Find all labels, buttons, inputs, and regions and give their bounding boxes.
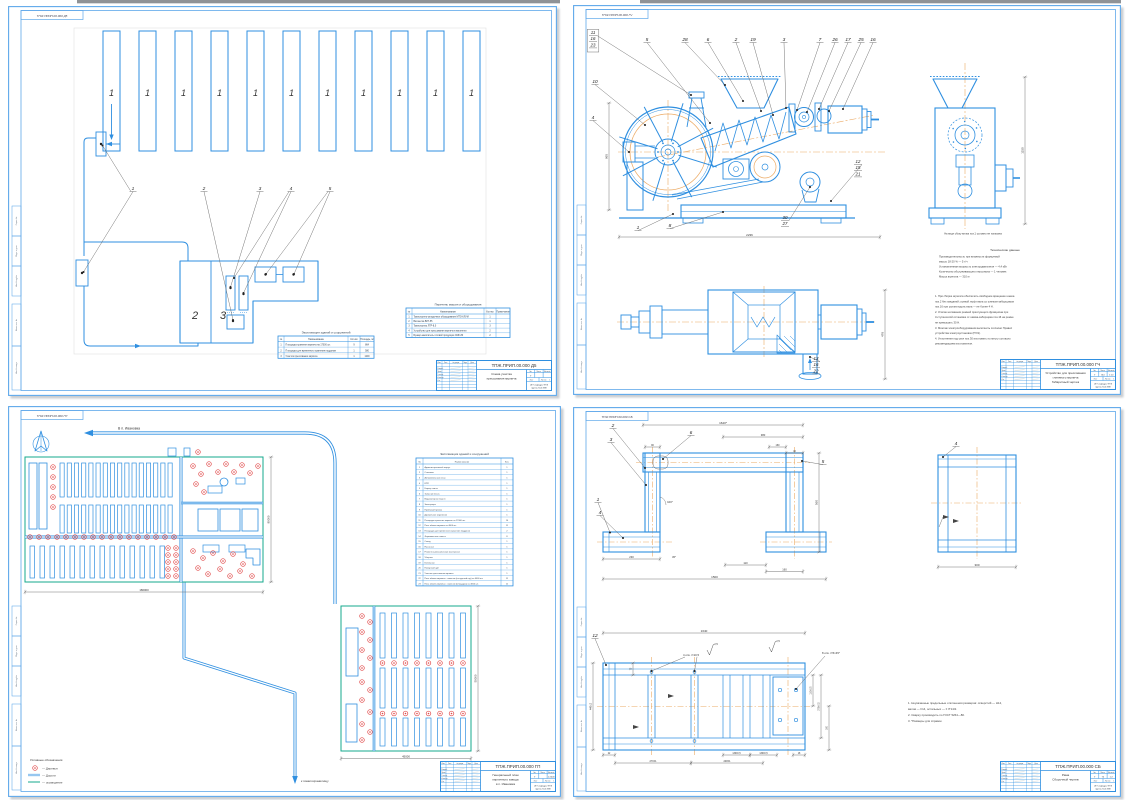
table-cell: 1 (506, 562, 508, 564)
margin-stamp: Справ. № (580, 618, 583, 627)
tech-data-line: Количество обслуживающего персонала — 1 … (939, 270, 1007, 274)
position-callout: 22 (813, 368, 819, 373)
margin-stamp: Подп. и дата (581, 243, 583, 255)
text-label: Лист (444, 362, 448, 364)
table-cell: Площадка хранения кирпича на 17000 шт. (286, 345, 332, 347)
table-header: Кол. (505, 462, 510, 464)
margin-stamp: Инв. № подл. (15, 362, 18, 374)
margin-stamp: Взам. инв. № (15, 319, 18, 331)
position-callout: 12 (592, 633, 598, 639)
note-line: устройства электроустановок (ПУЭ). (935, 331, 981, 335)
text-label: Утв. (441, 781, 445, 783)
text-label: 310 (1101, 374, 1105, 376)
dimension: 110±0,5 (810, 686, 812, 695)
table-cell: 864 (365, 345, 370, 347)
text-label: Т.контр. (437, 374, 444, 376)
text-label: Дата (1034, 763, 1038, 765)
text-label: Дата (474, 763, 478, 765)
chamber-label: 1 (325, 88, 330, 98)
table-cell: 5 (419, 488, 421, 490)
text-label: Т.контр. (1001, 373, 1008, 375)
table-cell: Запасник песка (425, 493, 441, 495)
sheet-machine[interactable]: ТПЖ.ПРИП.00.000 ГЧСправ. №Подп. и датаИн… (573, 5, 1121, 395)
table-cell: Карьер глины (425, 488, 439, 490)
table-cell: 9 (353, 345, 355, 347)
dimension: 560 (814, 500, 818, 505)
organization: группа П-41 МЖ (1095, 789, 1111, 791)
side-view (929, 63, 1020, 229)
table-cell: Водонапорная башня (425, 499, 446, 501)
table-cell: 1 (506, 557, 508, 559)
table-cell: 2 (419, 472, 421, 474)
note-line: 1. Неуказанные предельные отклонения раз… (908, 701, 1002, 705)
drawing-title: прессования кирпича (487, 377, 517, 381)
table-header: Площадь, м² (360, 338, 374, 341)
title-block: Изм.Лист№ докум.Подп.ДатаРазраб.Пров.Т.к… (1001, 360, 1116, 390)
organization: группа П-41 МЖ (535, 789, 551, 791)
dimension: 1640 (701, 629, 708, 633)
sheet-machine-canvas: ТПЖ.ПРИП.00.000 ГЧСправ. №Подп. и датаИн… (573, 5, 1121, 395)
position-callout: 2 (734, 37, 738, 43)
text-label: Лист (1094, 781, 1098, 783)
position-callout: 26 (831, 37, 838, 43)
plan-view (617, 286, 877, 380)
drying-chambers: 11111111111 (103, 31, 480, 151)
table-cell: Ремонтно-механическая мастерская (425, 552, 460, 554)
text-label: Масса (537, 371, 542, 373)
title-block: Изм.Лист№ докум.Подп.ДатаРазраб.Пров.Т.к… (1001, 762, 1116, 792)
drawing-title: кирпичного завода (492, 778, 518, 782)
road-destination-label: В п. Ивановка (118, 427, 140, 431)
drawing-title: в п. Ивановка (496, 782, 515, 786)
position-callout: 3 (259, 186, 262, 192)
text-label: Утв. (1001, 379, 1005, 381)
table-cell: Транспортно-укладочное оборудование МТО-… (414, 316, 469, 318)
text-label: 1:2 (1110, 776, 1114, 778)
text-label: Листов (1105, 781, 1111, 783)
position-callout: 1 (132, 186, 135, 192)
position-callout: 5 (822, 459, 825, 465)
chamber-label: 1 (469, 88, 474, 98)
organization: ЧГУ кафедра ТПЖ (1094, 382, 1112, 385)
table-cell: Участок прессования кирпича (425, 573, 455, 575)
table-header: Наименование (455, 462, 470, 464)
text-label: Дата (470, 362, 474, 364)
title-block: Изм.Лист№ докум.Подп.ДатаРазраб.Пров.Т.к… (441, 762, 556, 792)
table-cell: 5 (408, 335, 410, 337)
text-label: Пров. (437, 371, 442, 373)
table-cell: 1200 (364, 356, 370, 358)
table-cell: Участок прессования кирпича (286, 356, 319, 358)
tech-data-line: массы 18-20 % — 5 т/ч (939, 260, 968, 264)
dimension: 160 (782, 567, 787, 571)
table-cell: 16 (418, 546, 421, 548)
table-cell: Площадка хранения кирпича на 17000 шт. (425, 520, 466, 522)
table-cell: Вагонетка ВЛГ-55 (414, 321, 434, 323)
organization: ЧГУ кафедра ТПЖ (1094, 784, 1112, 787)
position-callout: 19 (750, 37, 756, 43)
sheet-genplan[interactable]: ТПЖ.ПРИП.00.000 ГПСправ. №Подп. и датаИн… (8, 406, 561, 797)
position-callout: 1 (597, 497, 600, 503)
table-cell: 12 (418, 525, 421, 527)
margin-stamp: Инв. № дубл. (580, 676, 583, 688)
table-cell: 1 (506, 541, 508, 543)
drawing-board: ТПЖ.ПРИП.00.000 Д5Справ. №Подп. и датаИн… (0, 0, 1126, 800)
road-destination-label: к пометохранилищу (301, 779, 329, 783)
dimension: 478 (880, 332, 884, 337)
table-cell: Административный корпус (425, 466, 451, 469)
main-site (25, 448, 263, 582)
text-label: Т.контр. (441, 775, 448, 777)
table-cell: 3 (419, 478, 421, 480)
chamber-label: 1 (181, 88, 186, 98)
note-line: поз.2 без заеданий; осевой люфт вала со … (935, 299, 1014, 303)
table-cell: Склад (425, 541, 432, 543)
position-callout: 16 (814, 362, 819, 367)
table-cell: 1 (419, 467, 421, 469)
organization: ЧГУ кафедра ТПЖ (534, 784, 552, 787)
chamber-label: 1 (289, 88, 294, 98)
text-label: Масштаб (548, 772, 555, 774)
sheet-frame[interactable]: ТПЖ.ПРИП.00.000 СБСправ. №Подп. и датаИн… (573, 407, 1121, 797)
position-callout: 4 (599, 510, 602, 516)
table-cell: 1 (506, 467, 508, 469)
hole-note: 8 отв. ∅5×45° (822, 651, 840, 655)
sheet-scheme-canvas: ТПЖ.ПРИП.00.000 Д5Справ. №Подп. и датаИн… (8, 6, 557, 396)
table-header: Кол-во (350, 339, 358, 341)
tech-data-line: Установленная мощность электродвигателя … (939, 265, 1008, 269)
table-cell: 2 (408, 321, 410, 323)
dimension: 18 (798, 753, 801, 755)
drawing-title: Рама (1062, 773, 1070, 777)
position-callout: 27 (782, 221, 788, 226)
table-cell: Печь обжига кирпича с навесом (площадка)… (425, 584, 479, 586)
table-cell: Формовочные навесы (425, 535, 447, 538)
text-label: Масштаб (544, 371, 551, 373)
chamber-label: 1 (145, 88, 150, 98)
table-cell: Площадка для временного хранения поддоно… (425, 531, 471, 533)
position-callout: 5 (329, 186, 332, 192)
table-title: Экспликация зданий и сооружений (302, 331, 351, 335)
table-cell: 1 (506, 568, 508, 570)
table-cell: 6 (419, 493, 421, 495)
position-callout: 3 (610, 437, 613, 443)
text-label: Листов (545, 781, 551, 783)
margin-stamp: Справ. № (15, 217, 18, 226)
dimension: 270±0,5 (818, 702, 820, 711)
table-header: № (280, 338, 283, 341)
margin-stamp: Справ. № (15, 617, 18, 626)
dimension: 300 (974, 563, 979, 567)
table-cell: Насосная (425, 546, 434, 548)
document-code: ТПЖ.ПРИП.00.000 ГП (496, 764, 541, 769)
dimension: 75 (630, 667, 632, 670)
position-callout: 2 (611, 423, 615, 429)
position-callout: 2 (202, 186, 206, 192)
table-cell: 3 (489, 326, 491, 328)
roughness: 2,5 (776, 639, 780, 643)
text-label: Лист (1094, 379, 1098, 381)
table-cell: Уборная (425, 557, 433, 559)
table-cell: 1 (506, 546, 508, 548)
text-label: 74 (1102, 776, 1105, 778)
table-cell: 14 (506, 520, 509, 522)
table-cell: 11 (418, 520, 421, 522)
table-cell: 10 (418, 515, 421, 517)
second-site (341, 606, 471, 751)
corner-stamp-code: ТПЖ.ПРИП.00.000 СБ (601, 415, 632, 419)
note-line: 2. Усилие натяжения ремней прессующего ф… (935, 310, 1009, 314)
text-label: Масштаб (1108, 772, 1115, 774)
dimension: 1500 (711, 575, 718, 579)
drawing-title: Сборочный чертеж (1052, 778, 1079, 782)
dimension: 160 (776, 444, 781, 447)
position-callout: 11 (591, 30, 596, 35)
position-callout: 25 (857, 37, 864, 43)
margin-stamp: Инв. № подл. (15, 762, 18, 774)
scheme-drawing: 111111111112312345Экспликация зданий и с… (74, 28, 510, 358)
dimension: 180000 (139, 588, 149, 592)
chamber-label: 1 (397, 88, 402, 98)
side-view (931, 447, 1023, 559)
text-label: Листов (1105, 379, 1111, 381)
note-line: 1. При сборке агрегата обеспечить свобод… (935, 294, 1015, 298)
text-label: Разраб. (437, 368, 444, 370)
table-cell: 4 (408, 330, 410, 332)
table-cell: 1 (506, 552, 508, 554)
zone-label: 2 (191, 310, 198, 322)
position-callout: 17 (845, 37, 851, 43)
chamber-label: 1 (253, 88, 258, 98)
text-label: Масштаб (1108, 370, 1115, 372)
dimension: 1150 (1020, 147, 1024, 154)
table-cell: 1 (506, 504, 508, 506)
roughness: 2,5 (714, 642, 718, 646)
table-cell: Транспортер ЛТР-8,0 (414, 326, 437, 328)
position-callout: 10 (592, 79, 598, 85)
machine-drawing: 22369651150На виде сбоку вилка поз.1 усл… (587, 29, 1027, 380)
dimension: 100° (667, 500, 673, 504)
margin-stamp: Взам. инв. № (580, 318, 583, 330)
dimension: 45° (672, 555, 676, 559)
text-label: Изм. (1001, 361, 1005, 363)
table-cell: Бункер-накопитель готовой продукции СМК-… (414, 334, 464, 337)
margin-stamp: Справ. № (580, 216, 583, 225)
table-cell: 1 (280, 345, 282, 347)
table-cell: 1 (353, 356, 355, 358)
margin-stamp: Инв. № дубл. (580, 274, 583, 286)
position-callout: 6 (707, 37, 710, 43)
title-block: Изм.Лист№ докум.Подп.ДатаРазраб.Пров.Т.к… (437, 361, 552, 391)
table-cell: Электроцех (425, 504, 437, 506)
margin-stamp: Подп. и дата (16, 644, 18, 656)
position-callout: 4 (955, 441, 958, 447)
table-cell: 1 (506, 488, 508, 490)
plan-view (597, 657, 811, 756)
table-header: Примечание (496, 312, 510, 314)
table-cell: 1 (353, 350, 355, 352)
dimension: 380 (761, 433, 766, 437)
legend-item: — ограждение (42, 781, 63, 785)
position-callout: 15 (856, 165, 861, 170)
table-cell: 8 (506, 536, 508, 538)
text-label: Лист (530, 380, 534, 382)
table-cell: 1 (408, 316, 410, 318)
position-callout: 23 (590, 42, 596, 47)
table-cell: Столовая (425, 472, 434, 474)
margin-stamp: Инв. № дубл. (15, 675, 18, 687)
note-line: 3-ступенчатой остановке от шкива-заборщи… (935, 315, 1014, 319)
corner-stamp-code: ТПЖ.ПРИП.00.000 Д5 (37, 14, 68, 18)
text-label: Подп. (463, 362, 468, 364)
table-cell: 1 (506, 483, 508, 485)
text-label: Пров. (1001, 772, 1006, 774)
frame-drawing: 1640*3801604090100°56023045°110160150023… (589, 421, 1023, 765)
tech-text: Технические данныеПроизводительность при… (935, 248, 1020, 346)
sheet-scheme[interactable]: ТПЖ.ПРИП.00.000 Д5Справ. №Подп. и датаИн… (8, 6, 557, 396)
corner-stamp-code: ТПЖ.ПРИП.00.000 ГП (37, 414, 69, 418)
drawing-title: Схема участка (491, 372, 512, 376)
text-label: № докум. (1016, 360, 1024, 363)
drawing-title: Габаритный чертеж (1052, 380, 1079, 384)
table-cell: 1 (506, 573, 508, 575)
organization: группа П-41 МЖ (531, 388, 547, 390)
hole-note: 4 отв. ∅10,5 (683, 653, 699, 657)
note-line: 2. Сварку производить по ГОСТ 5264—80. (908, 713, 965, 717)
text-label: Лист (448, 763, 452, 765)
dimension: 90 (651, 444, 654, 447)
dimension: 440±2 (589, 702, 592, 710)
text-label: Н.контр. (441, 778, 448, 780)
text-label: 1 (1113, 379, 1114, 381)
table-cell: 1 (489, 321, 491, 323)
chamber-label: 1 (433, 88, 438, 98)
text-label: У (1094, 776, 1096, 778)
sheet-frame-canvas: ТПЖ.ПРИП.00.000 СБСправ. №Подп. и датаИн… (573, 407, 1121, 797)
text-label: Разраб. (1001, 769, 1008, 771)
table-cell: 1 (489, 316, 491, 318)
position-callout: 12 (856, 159, 861, 164)
text-label: Н.контр. (437, 377, 444, 379)
table-cell: 1 (506, 509, 508, 511)
position-callout: 13 (814, 356, 819, 361)
margin-stamp: Взам. инв. № (15, 719, 18, 731)
document-code: ТПЖ.ПРИП.00.000 СБ (1055, 764, 1101, 769)
sheet-border: ТПЖ.ПРИП.00.000 ГЧСправ. №Подп. и датаИн… (574, 6, 1121, 395)
table-cell: 3 (408, 326, 410, 328)
margin-stamp: Подп. и дата (581, 645, 583, 657)
position-callout: 5 (646, 37, 649, 43)
table-cell: 11 (506, 578, 509, 580)
table-cell: 1 (506, 493, 508, 495)
table-cell: 22 (418, 578, 421, 580)
table-cell: 2 (489, 335, 491, 337)
drawing-title: Устройство для прессования (1045, 371, 1086, 375)
table-cell: 20 (418, 568, 421, 570)
table-cell: Дробильное отделение (425, 515, 448, 517)
text-label: Листов (541, 380, 547, 382)
table-header: Наименование (440, 312, 457, 314)
tables: Экспликация зданий и сооружений№Наименов… (278, 303, 510, 359)
text-label: У (530, 375, 532, 377)
text-label: Подп. (467, 763, 472, 765)
text-label: Лист (1008, 763, 1012, 765)
table-cell: 3 (280, 356, 282, 358)
table-cell: 2 (280, 350, 282, 352)
legend-title: Условные обозначения (30, 758, 63, 762)
text-label: Утв. (437, 380, 441, 382)
table-cell: 1 (506, 515, 508, 517)
dimension: 130±0,5 (759, 753, 768, 755)
margin-stamp: Взам. инв. № (580, 720, 583, 732)
table-cell: 17 (418, 552, 421, 554)
position-callout: 7 (819, 37, 822, 43)
dimension: 40 (793, 450, 796, 453)
text-label: № докум. (456, 762, 464, 765)
text-label: Разраб. (441, 769, 448, 771)
table-cell: Площадка для временного хранения поддоно… (286, 350, 337, 352)
note-line: 3. Монтаж электрооборудования выполнить … (935, 326, 1013, 330)
legend: Условные обозначения— Деревья— Дороги— о… (28, 758, 63, 785)
position-callout: 16 (591, 36, 596, 41)
view-note: На виде сбоку вилка поз.1 условно не пок… (944, 232, 1002, 236)
organization: ЧГУ кафедра ТПЖ (530, 383, 548, 386)
dimension: 230 (629, 555, 634, 559)
text-label: Подп. (1027, 361, 1032, 363)
text-label: У (534, 776, 536, 778)
text-label: 1 (1113, 781, 1114, 783)
dimension: 2236 (746, 233, 753, 237)
dimension: 1640* (719, 421, 728, 425)
dimension: 130±0,5 (732, 753, 741, 755)
text-label: 1 (553, 781, 554, 783)
table-cell: 7 (419, 499, 421, 501)
dimension: 270±1 (650, 760, 658, 763)
table-cell: 11 (506, 584, 509, 586)
table-cell: 4 (419, 483, 421, 485)
document-code: ТПЖ.ПРИП.00.000 Д5 (492, 363, 537, 368)
table-title: Перечень машин и оборудования (435, 303, 482, 307)
text-label: Н.контр. (1001, 376, 1008, 378)
margin-stamp: Инв. № дубл. (15, 275, 18, 287)
table-cell: Котельная (425, 562, 435, 564)
margin-stamp: Подп. и дата (16, 244, 18, 256)
tech-data-line: Производительность при влажности формуем… (939, 255, 1000, 259)
table-cell: 9 (419, 509, 421, 511)
note-line: не превышать 30 Н. (935, 321, 960, 325)
table-header: № (408, 311, 411, 314)
tech-data-line: Масса агрегата — 310 кг (939, 275, 970, 279)
position-callout: 6 (690, 430, 693, 436)
table-cell: 19 (418, 562, 421, 564)
table-cell: 13 (418, 531, 421, 533)
genplan-drawing: В п. Ивановкак пометохранилищу1800008000… (24, 427, 513, 785)
document-code: ТПЖ.ПРИП.00.000 ГЧ (1056, 362, 1101, 367)
text-label: 1:10 (1109, 374, 1114, 376)
note-line: поз.16 при усилии вдоль вала — не более … (935, 305, 994, 309)
table-cell: 21 (418, 573, 421, 575)
text-label: Изм. (441, 763, 445, 765)
text-label: Масса (541, 772, 546, 774)
dimension: 160 (826, 725, 828, 730)
position-callout: 16 (870, 37, 876, 43)
note-line: 3. *Размеры для справок. (908, 719, 942, 723)
table-cell: 2 (489, 330, 491, 332)
table-header: № (418, 461, 421, 464)
text-label: 1:2000 (548, 776, 555, 778)
upper-sheet-edge-left (77, 0, 560, 4)
front-view (597, 447, 832, 559)
